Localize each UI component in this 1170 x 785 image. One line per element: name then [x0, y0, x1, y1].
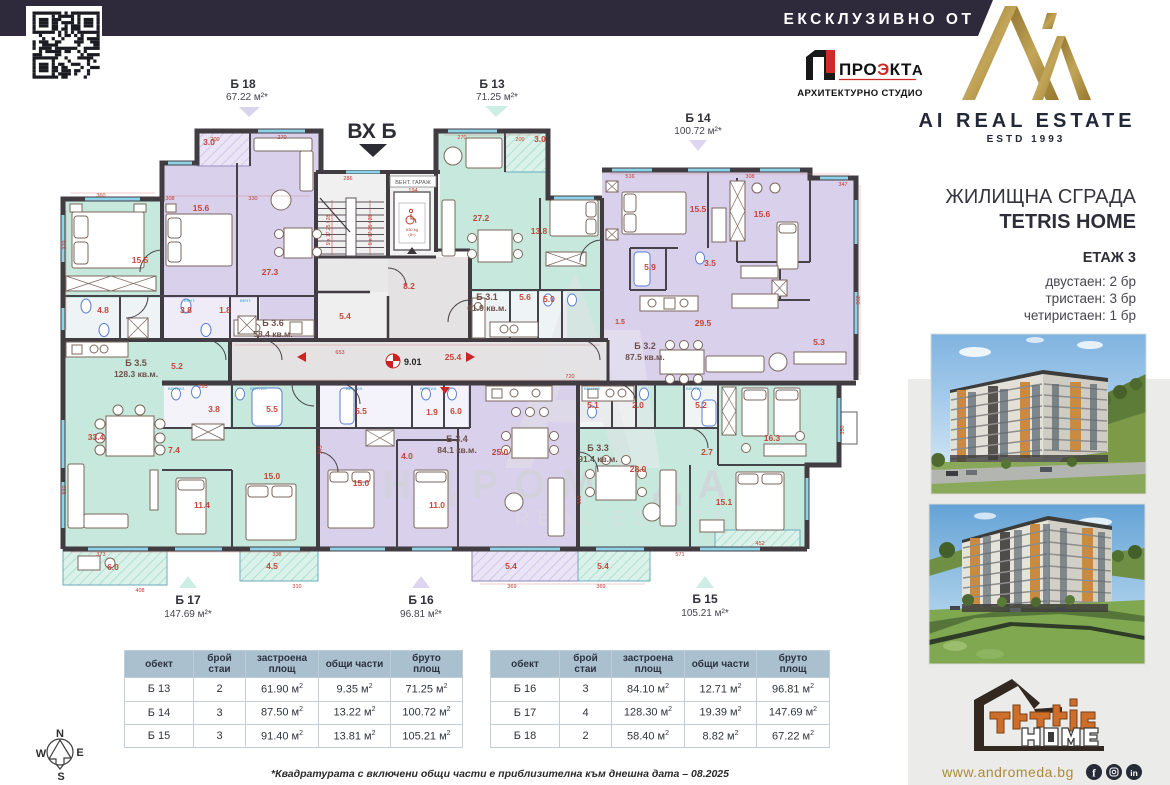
svg-text:in: in: [1130, 768, 1138, 778]
svg-text:ВЕНТИЛ.: ВЕНТИЛ.: [686, 386, 703, 391]
svg-text:1.5: 1.5: [615, 319, 625, 326]
svg-text:5.5: 5.5: [355, 406, 367, 416]
svg-text:345: 345: [318, 445, 324, 454]
svg-text:7.4: 7.4: [168, 445, 180, 455]
svg-text:15.6: 15.6: [193, 203, 210, 213]
svg-text:5.4: 5.4: [339, 311, 351, 321]
svg-text:200: 200: [515, 137, 524, 143]
svg-text:270: 270: [457, 135, 466, 141]
svg-text:362: 362: [856, 295, 862, 304]
svg-text:286: 286: [343, 176, 352, 182]
svg-text:61.9 кв.м.: 61.9 кв.м.: [467, 303, 506, 313]
svg-text:ВЕНТИЛ.: ВЕНТИЛ.: [584, 386, 601, 391]
svg-text:Б 14: Б 14: [685, 111, 711, 125]
svg-text:4.8: 4.8: [97, 305, 109, 315]
svg-text:308: 308: [165, 196, 174, 202]
svg-text:6.0: 6.0: [107, 562, 119, 572]
svg-text:2.0: 2.0: [632, 400, 644, 410]
svg-text:5.1: 5.1: [587, 400, 599, 410]
svg-text:ВЕНТ. ГАРАЖ: ВЕНТ. ГАРАЖ: [395, 180, 430, 186]
svg-text:S: S: [57, 771, 64, 783]
svg-text:347: 347: [838, 182, 847, 188]
svg-text:5.2: 5.2: [171, 361, 183, 371]
svg-text:Б 3.2: Б 3.2: [634, 341, 655, 351]
svg-text:100.72 м²*: 100.72 м²*: [674, 126, 722, 137]
svg-text:15.0: 15.0: [353, 478, 370, 488]
svg-text:Б 13: Б 13: [479, 77, 505, 91]
svg-text:369: 369: [507, 584, 516, 590]
svg-text:200: 200: [210, 137, 219, 143]
svg-text:147.69 м²*: 147.69 м²*: [164, 609, 212, 620]
svg-text:880: 880: [62, 485, 68, 494]
svg-text:TETRIS HOME: TETRIS HOME: [999, 211, 1136, 233]
svg-text:ЕТАЖ 3: ЕТАЖ 3: [1083, 250, 1136, 266]
svg-text:9 x 17.25 / 28: 9 x 17.25 / 28: [368, 215, 374, 246]
svg-text:8.2: 8.2: [403, 281, 415, 291]
svg-text:5.9: 5.9: [644, 262, 656, 272]
svg-text:ЖИЛИЩНА СГРАДА: ЖИЛИЩНА СГРАДА: [945, 186, 1136, 208]
svg-text:350: 350: [840, 425, 846, 434]
svg-text:Б 3.3: Б 3.3: [587, 443, 608, 453]
svg-text:9 x 17.25 / 28: 9 x 17.25 / 28: [326, 215, 332, 246]
svg-text:452: 452: [755, 541, 764, 547]
svg-text:1.8: 1.8: [219, 305, 231, 315]
svg-text:194: 194: [408, 188, 417, 194]
svg-text:5.4: 5.4: [505, 561, 517, 571]
svg-text:ЕКСКЛУЗИВНО ОТ: ЕКСКЛУЗИВНО ОТ: [784, 11, 975, 28]
svg-text:www.andromeda.bg: www.andromeda.bg: [941, 764, 1074, 780]
svg-text:25.4: 25.4: [445, 352, 462, 362]
svg-text:571: 571: [675, 552, 684, 558]
svg-text:310: 310: [292, 584, 301, 590]
svg-text:3.5: 3.5: [704, 258, 716, 268]
svg-text:338: 338: [272, 552, 281, 558]
svg-text:408: 408: [135, 588, 144, 594]
svg-text:15.5: 15.5: [132, 255, 149, 265]
svg-text:9.01: 9.01: [404, 357, 422, 367]
svg-text:58.4 кв.м.: 58.4 кв.м.: [253, 329, 292, 339]
svg-text:Б 3.6: Б 3.6: [262, 318, 283, 328]
svg-text:4.5: 4.5: [266, 561, 278, 571]
svg-text:84.1 кв.м.: 84.1 кв.м.: [437, 445, 476, 455]
svg-text:13.8: 13.8: [531, 226, 548, 236]
svg-text:308: 308: [745, 174, 754, 180]
svg-text:2.7: 2.7: [701, 447, 713, 457]
svg-text:128.3 кв.м.: 128.3 кв.м.: [114, 369, 158, 379]
svg-text:двустаен: 2 бр: двустаен: 2 бр: [1045, 274, 1136, 289]
svg-text:29.5: 29.5: [695, 318, 712, 328]
svg-text:ВЕНТИЛ.: ВЕНТИЛ.: [346, 386, 363, 391]
svg-text:11.4: 11.4: [194, 500, 210, 510]
svg-text:11.0: 11.0: [429, 500, 445, 510]
svg-text:369: 369: [596, 584, 605, 590]
svg-text:15.6: 15.6: [754, 209, 771, 219]
svg-text:четиристаен: 1 бр: четиристаен: 1 бр: [1024, 308, 1136, 323]
svg-text:W: W: [36, 748, 47, 760]
svg-text:15.5: 15.5: [690, 204, 707, 214]
svg-text:4.0: 4.0: [401, 451, 413, 461]
svg-text:105.21 м²*: 105.21 м²*: [681, 608, 729, 619]
svg-text:E: E: [76, 747, 83, 759]
svg-text:f: f: [1092, 768, 1096, 780]
svg-text:Б 15: Б 15: [692, 592, 718, 606]
svg-text:27.2: 27.2: [473, 213, 490, 223]
svg-text:360: 360: [96, 193, 105, 199]
svg-text:5.5: 5.5: [266, 404, 278, 414]
svg-text:270: 270: [277, 135, 286, 141]
svg-text:5.3: 5.3: [813, 337, 825, 347]
svg-text:тристаен: 3 бр: тристаен: 3 бр: [1046, 291, 1137, 306]
svg-text:1.9: 1.9: [426, 407, 438, 417]
svg-text:3.8: 3.8: [208, 404, 220, 414]
svg-text:16.3: 16.3: [764, 433, 781, 443]
svg-text:Б 3.4: Б 3.4: [446, 434, 467, 444]
svg-text:5.6: 5.6: [519, 292, 531, 302]
svg-text:ВЕНТ.: ВЕНТ.: [184, 298, 195, 303]
svg-text:Б 3.5: Б 3.5: [125, 358, 146, 368]
svg-text:370: 370: [62, 240, 68, 249]
svg-text:96.81 м²*: 96.81 м²*: [400, 609, 442, 620]
svg-text:ВЕНТИЛ.: ВЕНТИЛ.: [420, 386, 437, 391]
svg-text:Б 3.1: Б 3.1: [476, 292, 497, 302]
svg-text:Б 18: Б 18: [230, 77, 256, 91]
svg-text:25.0: 25.0: [492, 447, 509, 457]
svg-text:АНДРОМЕДА: АНДРОМЕДА: [338, 463, 743, 507]
svg-text:15.1: 15.1: [716, 497, 733, 507]
svg-text:5.2: 5.2: [695, 400, 707, 410]
svg-text:Б 16: Б 16: [408, 593, 434, 607]
svg-text:28.0: 28.0: [630, 464, 647, 474]
svg-text:3.8: 3.8: [180, 305, 192, 315]
svg-text:653: 653: [335, 350, 344, 356]
svg-text:720: 720: [565, 374, 574, 380]
svg-text:333: 333: [577, 495, 583, 504]
svg-text:91.4 кв.м.: 91.4 кв.м.: [578, 454, 617, 464]
svg-text:N: N: [56, 728, 64, 740]
svg-text:330: 330: [248, 196, 257, 202]
svg-text:ВХ Б: ВХ Б: [347, 120, 396, 143]
svg-text:AI REAL ESTATE: AI REAL ESTATE: [918, 110, 1135, 132]
svg-text:3.0: 3.0: [534, 134, 546, 144]
svg-text:5.0: 5.0: [543, 294, 555, 304]
svg-text:71.25 м²*: 71.25 м²*: [476, 92, 518, 103]
svg-text:ESTD 1993: ESTD 1993: [987, 134, 1066, 145]
svg-text:(8+): (8+): [408, 232, 416, 237]
svg-text:5.4: 5.4: [597, 561, 609, 571]
svg-text:6.0: 6.0: [450, 406, 462, 416]
svg-text:33.4: 33.4: [88, 432, 105, 442]
svg-text:АРХИТЕКТУРНО СТУДИО: АРХИТЕКТУРНО СТУДИО: [797, 88, 923, 99]
svg-text:27.3: 27.3: [262, 267, 279, 277]
svg-text:ВЕНТИЛ.: ВЕНТИЛ.: [250, 386, 267, 391]
svg-text:ПРОЭКТА: ПРОЭКТА: [839, 60, 923, 79]
svg-text:ВЕНТ.: ВЕНТ.: [240, 298, 251, 303]
svg-text:15.0: 15.0: [264, 471, 281, 481]
svg-text:Б 17: Б 17: [175, 593, 201, 607]
svg-text:516: 516: [625, 174, 634, 180]
svg-text:67.22 м²*: 67.22 м²*: [226, 92, 268, 103]
svg-text:373: 373: [96, 552, 105, 558]
svg-text:295: 295: [198, 384, 207, 390]
svg-text:ВЕНТИЛ.: ВЕНТИЛ.: [168, 386, 185, 391]
svg-text:87.5 кв.м.: 87.5 кв.м.: [625, 352, 664, 362]
